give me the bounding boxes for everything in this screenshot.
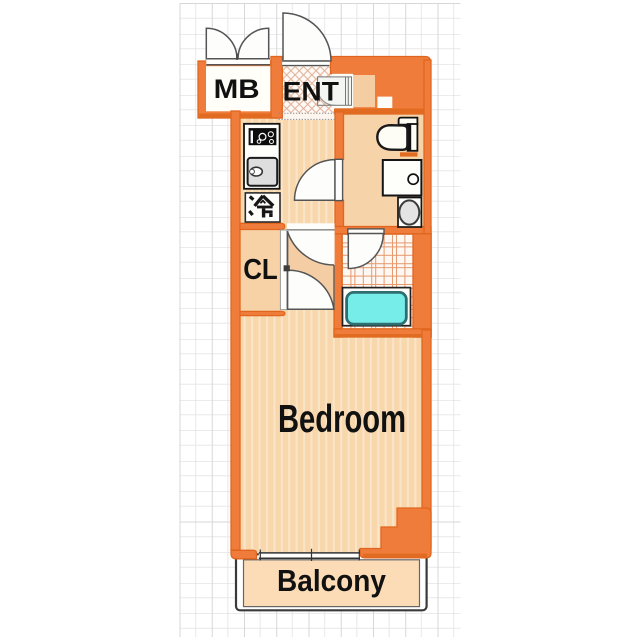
svg-text:Balcony: Balcony bbox=[277, 563, 386, 598]
svg-text:ENT: ENT bbox=[283, 76, 340, 107]
svg-text:Bedroom: Bedroom bbox=[278, 398, 406, 441]
svg-text:CL: CL bbox=[243, 254, 278, 286]
svg-text:MB: MB bbox=[214, 74, 260, 104]
